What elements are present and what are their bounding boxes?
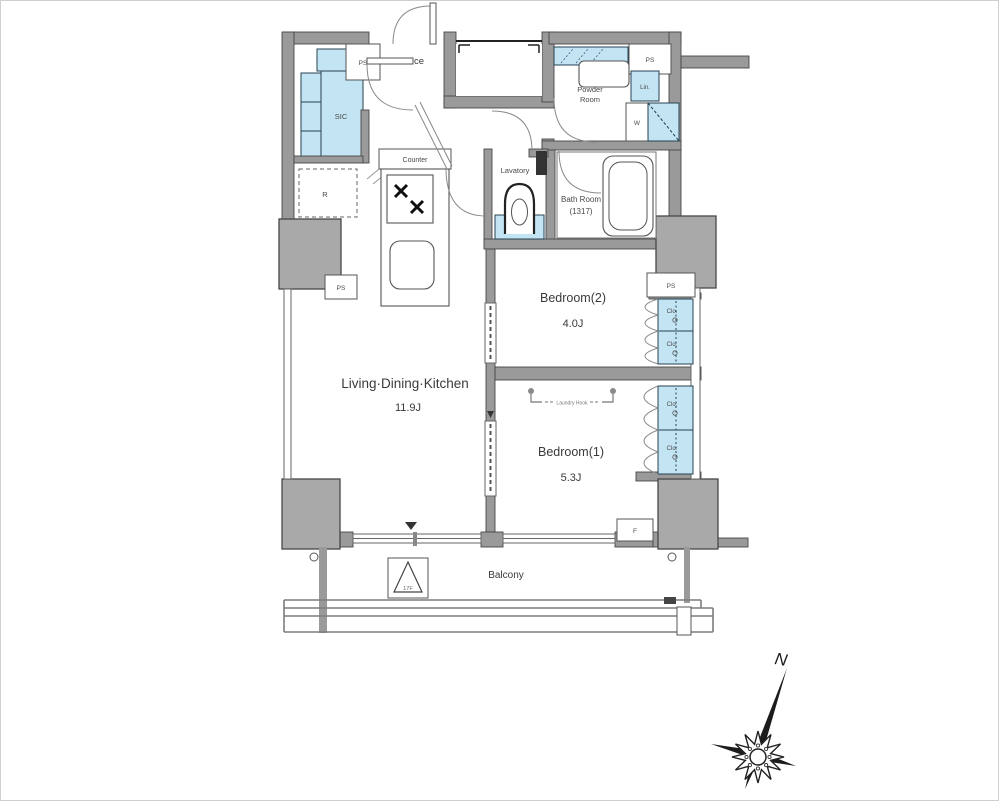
wall-segment bbox=[542, 141, 681, 150]
balcony: 17F Balcony bbox=[284, 547, 713, 635]
pillar bbox=[658, 479, 718, 549]
f-box-label: F bbox=[633, 528, 637, 535]
sic-door-panel bbox=[367, 58, 413, 64]
pillar bbox=[282, 479, 340, 549]
ps-label: PS bbox=[337, 285, 346, 292]
evacuation-hatch-label: 17F bbox=[403, 586, 413, 592]
counter-label: Counter bbox=[403, 157, 429, 164]
room-lavatory: Lavatory bbox=[495, 151, 547, 239]
wall-segment bbox=[361, 110, 369, 163]
wall-segment bbox=[284, 32, 369, 44]
wall-segment bbox=[549, 32, 681, 44]
drain-icon bbox=[668, 553, 676, 561]
refrigerator-space bbox=[299, 169, 357, 217]
wall-segment bbox=[294, 156, 363, 163]
floorplan-image: PS PS PS PS F Entrance SIC Counter R Pow… bbox=[0, 0, 999, 801]
closet-label: Clo. bbox=[667, 446, 678, 452]
window bbox=[284, 289, 291, 479]
compass-north-label: N bbox=[773, 649, 789, 670]
hook-icon bbox=[610, 388, 616, 394]
ps-label: PS bbox=[667, 283, 676, 290]
sink bbox=[390, 241, 434, 289]
wall-segment bbox=[282, 32, 294, 222]
ps-label: PS bbox=[646, 57, 655, 64]
bath-room-size-label: (1317) bbox=[569, 207, 592, 216]
compass-center-ring bbox=[750, 749, 766, 765]
alcove bbox=[456, 41, 542, 96]
sic-label: SIC bbox=[335, 112, 348, 121]
sliding-door-bedroom2 bbox=[485, 303, 496, 363]
ldk-size-label: 11.9J bbox=[395, 402, 421, 414]
ldk-label: Living·Dining·Kitchen bbox=[341, 376, 469, 391]
toilet bbox=[505, 184, 534, 234]
wall-segment bbox=[546, 150, 555, 240]
folding-door-arcs bbox=[645, 299, 658, 364]
bedroom1-label: Bedroom(1) bbox=[538, 445, 604, 459]
folding-door-arcs bbox=[644, 386, 658, 474]
balcony-side-wall bbox=[319, 547, 327, 633]
bedroom2-size-label: 4.0J bbox=[563, 318, 584, 330]
wall-segment bbox=[681, 56, 749, 68]
drain-icon bbox=[310, 553, 318, 561]
compass: N bbox=[711, 649, 796, 789]
alcove-floor bbox=[456, 44, 542, 96]
wall-segment bbox=[484, 239, 661, 249]
powder-room-label-2: Room bbox=[580, 95, 600, 104]
lavatory-door-arc bbox=[492, 111, 532, 151]
wall-segment bbox=[444, 96, 554, 108]
wall-segment bbox=[484, 149, 492, 241]
sic-shelf-1 bbox=[301, 73, 321, 102]
wall-segment bbox=[495, 367, 701, 380]
stove bbox=[387, 175, 433, 223]
wall-segment bbox=[481, 532, 503, 547]
lavatory-label: Lavatory bbox=[501, 166, 530, 175]
balcony-divider bbox=[677, 607, 691, 635]
window-center-post bbox=[413, 532, 417, 546]
linen-label: Lin. bbox=[640, 85, 650, 91]
closets: Clo. Clo. Clo. Clo. bbox=[644, 299, 693, 474]
railing-joint bbox=[664, 597, 676, 604]
bedroom2-label: Bedroom(2) bbox=[540, 291, 606, 305]
laundry-hook: Laundry Hook bbox=[528, 388, 616, 407]
balcony-railing bbox=[284, 600, 713, 632]
hook-arm bbox=[531, 394, 542, 402]
floorplan-svg: PS PS PS PS F Entrance SIC Counter R Pow… bbox=[1, 1, 999, 801]
lavatory-cabinet bbox=[536, 151, 547, 175]
washbasin bbox=[579, 61, 629, 87]
hook-icon bbox=[528, 388, 534, 394]
bath-room-label: Bath Room bbox=[561, 195, 601, 204]
powder-door-arc bbox=[554, 98, 596, 142]
hook-arm bbox=[602, 394, 613, 402]
balcony-label: Balcony bbox=[488, 570, 524, 581]
balcony-side-wall bbox=[684, 547, 690, 603]
room-bath: Bath Room (1317) bbox=[557, 152, 656, 238]
closet-label: Clo. bbox=[667, 342, 678, 348]
refrigerator-label: R bbox=[322, 190, 328, 199]
closet-label: Clo. bbox=[667, 402, 678, 408]
wall-segment bbox=[716, 538, 748, 547]
laundry-hook-label: Laundry Hook bbox=[556, 401, 588, 407]
room-labels: Bedroom(2) 4.0J Bedroom(1) 5.3J Living·D… bbox=[341, 291, 606, 484]
window-marker-icon bbox=[405, 522, 417, 530]
entrance-door-panel bbox=[430, 3, 436, 44]
entrance-door-arc bbox=[393, 6, 431, 44]
closet-label: Clo. bbox=[667, 309, 678, 315]
sic-shelf-2 bbox=[301, 102, 321, 131]
ldk-door-arc bbox=[446, 168, 486, 216]
powder-room-label-1: Powder bbox=[577, 85, 603, 94]
compass-rose bbox=[732, 731, 784, 783]
bedroom1-size-label: 5.3J bbox=[561, 472, 582, 484]
washer-label: W bbox=[634, 120, 641, 127]
